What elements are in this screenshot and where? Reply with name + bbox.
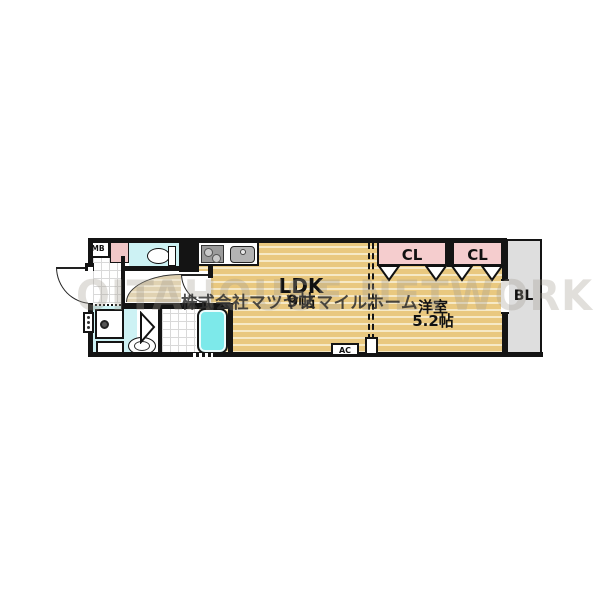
wall-duct-block bbox=[179, 241, 199, 272]
closet-1: CL bbox=[377, 241, 447, 266]
bath-vent-marks bbox=[193, 353, 213, 357]
kitchen-counter bbox=[197, 241, 259, 266]
closet-1-label: CL bbox=[379, 248, 445, 263]
toilet-room bbox=[129, 243, 179, 268]
closet-divider-wall bbox=[447, 241, 452, 267]
toilet-tank bbox=[168, 246, 176, 266]
stove-icon bbox=[201, 245, 224, 263]
drain-icon bbox=[100, 320, 109, 329]
toilet-icon bbox=[147, 248, 170, 264]
sink-icon bbox=[230, 246, 255, 263]
partition-post bbox=[365, 337, 378, 355]
wall-bottom bbox=[88, 352, 543, 357]
closet-2-label: CL bbox=[454, 248, 501, 263]
ac-outlet: AC bbox=[331, 343, 359, 356]
shoe-cabinet bbox=[110, 241, 129, 263]
floorplan: BL MB bbox=[0, 0, 600, 600]
ac-label: AC bbox=[333, 347, 357, 355]
closet-2: CL bbox=[452, 241, 503, 266]
company-watermark: 株式会社マツヤスマイルホーム bbox=[181, 289, 418, 313]
wall-top bbox=[88, 238, 507, 243]
